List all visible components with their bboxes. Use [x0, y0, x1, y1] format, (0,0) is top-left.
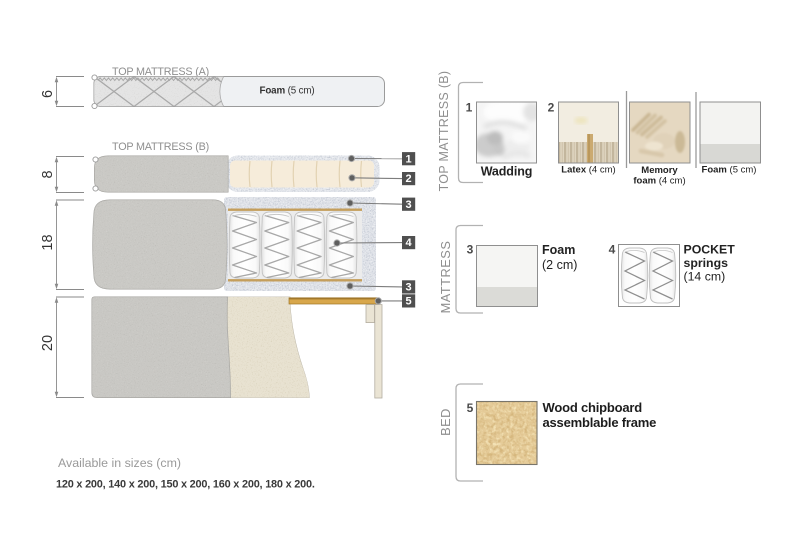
svg-text:18: 18	[40, 234, 56, 250]
svg-text:5: 5	[406, 296, 412, 308]
svg-text:BED: BED	[438, 408, 453, 436]
svg-text:2: 2	[548, 101, 555, 115]
svg-text:MATTRESS: MATTRESS	[438, 241, 453, 314]
svg-text:TOP MATTRESS (B): TOP MATTRESS (B)	[112, 141, 209, 153]
svg-text:POCKET: POCKET	[684, 243, 736, 257]
svg-text:5: 5	[467, 401, 474, 415]
svg-text:120 x 200, 140 x 200, 150 x 20: 120 x 200, 140 x 200, 150 x 200, 160 x 2…	[56, 479, 315, 491]
svg-text:TOP MATTRESS (B): TOP MATTRESS (B)	[437, 71, 451, 192]
svg-text:(2 cm): (2 cm)	[542, 258, 577, 272]
svg-text:springs: springs	[684, 256, 729, 270]
svg-text:(14 cm): (14 cm)	[684, 270, 726, 284]
svg-text:8: 8	[40, 170, 56, 178]
svg-text:4: 4	[609, 243, 616, 257]
svg-text:2: 2	[406, 173, 412, 185]
svg-text:Foam: Foam	[542, 243, 575, 257]
svg-text:Foam (5 cm): Foam (5 cm)	[260, 86, 315, 97]
svg-text:3: 3	[406, 282, 412, 294]
svg-text:4: 4	[406, 237, 413, 249]
svg-text:assemblable frame: assemblable frame	[543, 415, 657, 430]
svg-text:3: 3	[467, 243, 474, 257]
svg-text:3: 3	[406, 199, 412, 211]
svg-text:Wadding: Wadding	[481, 165, 533, 179]
svg-text:Memory: Memory	[641, 165, 678, 176]
svg-text:Wood chipboard: Wood chipboard	[543, 400, 643, 415]
svg-text:Latex (4 cm): Latex (4 cm)	[561, 165, 615, 176]
svg-text:1: 1	[406, 153, 412, 165]
svg-text:6: 6	[40, 90, 56, 98]
svg-text:Foam (5 cm): Foam (5 cm)	[702, 165, 757, 176]
svg-text:1: 1	[466, 101, 473, 115]
svg-text:foam (4 cm): foam (4 cm)	[633, 175, 685, 186]
svg-text:20: 20	[40, 335, 56, 351]
svg-text:Available in sizes (cm): Available in sizes (cm)	[58, 456, 181, 470]
